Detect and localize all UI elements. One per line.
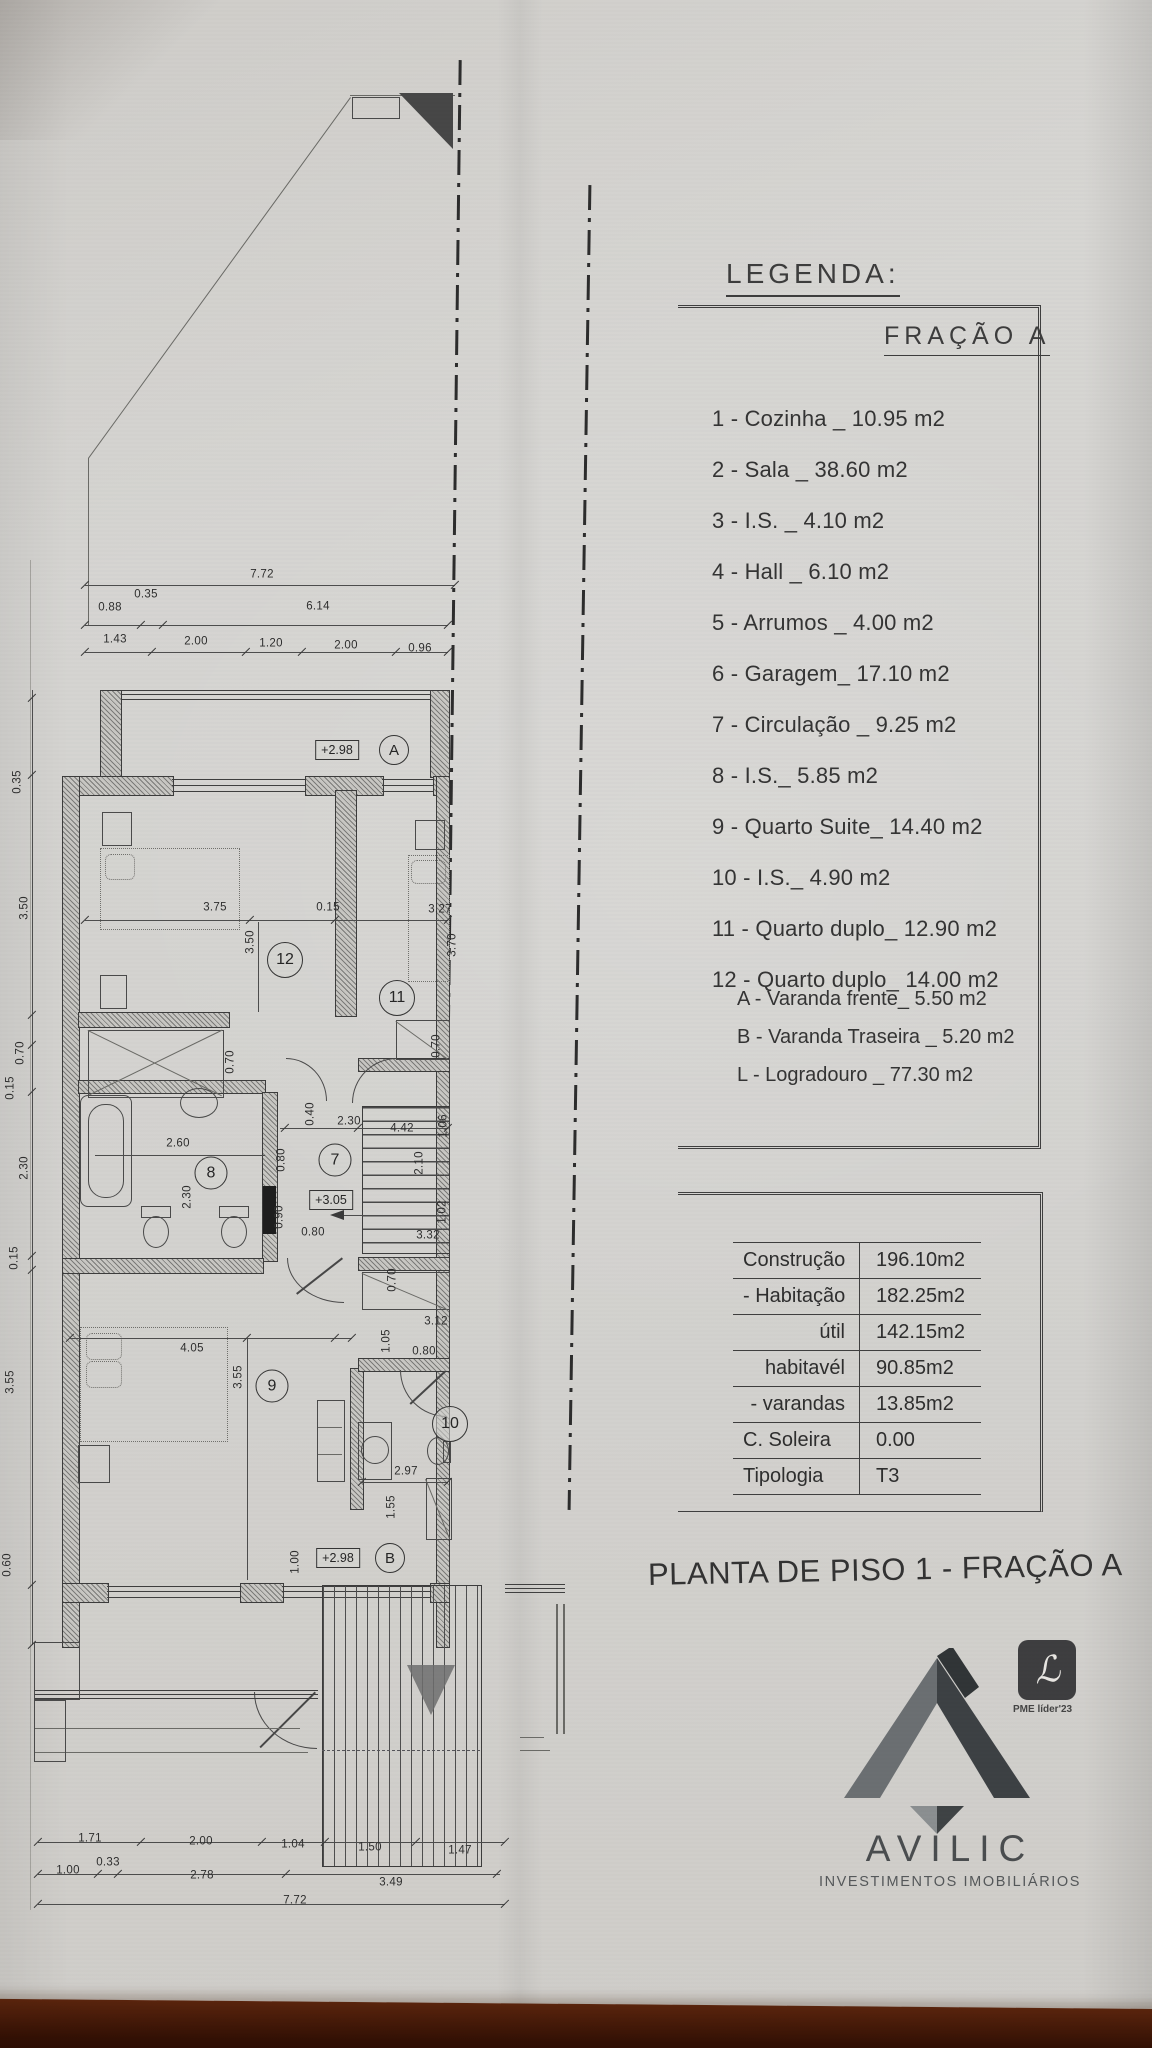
table-row-label: - varandas [733, 1387, 860, 1422]
dimension-label: 3.55 [233, 1365, 245, 1389]
dimension-label: 3.32 [416, 1230, 440, 1242]
dimension-label: 0.70 [387, 1268, 399, 1292]
table-row-value: 90.85m2 [860, 1357, 981, 1380]
dimension-label: 4.05 [180, 1343, 204, 1355]
level-marker: +3.05 [309, 1190, 353, 1210]
wardrobe-icon [317, 1400, 345, 1482]
room-number-11: 11 [379, 980, 415, 1016]
balcony-rail [100, 690, 448, 700]
dimension-label: 3.49 [379, 1877, 403, 1889]
window [382, 779, 433, 792]
dimension-line [362, 1482, 448, 1483]
boundary-marker [352, 97, 400, 119]
dimension-label: 1.55 [386, 1495, 398, 1519]
legend-item: 3 - I.S. _ 4.10 m2 [712, 508, 999, 534]
wall [430, 690, 450, 778]
dimension-line [280, 1128, 448, 1129]
neighbour-line [520, 1750, 550, 1751]
dimension-label: 2.30 [182, 1185, 194, 1209]
legend-subitem: A - Varanda frente_ 5.50 m2 [737, 988, 1015, 1011]
table-row-value: 0.00 [860, 1429, 981, 1452]
legend-subitem-list: A - Varanda frente_ 5.50 m2B - Varanda T… [737, 988, 1015, 1087]
door-arc [286, 1058, 327, 1101]
dimension-label: 2.78 [190, 1870, 214, 1882]
boundary-line [88, 458, 89, 625]
dimension-label: 2.30 [19, 1156, 31, 1180]
sink-icon [180, 1088, 218, 1118]
dimension-label: 7.72 [250, 569, 274, 581]
level-marker: +2.98 [315, 740, 359, 760]
legend-heading: LEGENDA: [726, 258, 900, 297]
dimension-label: 0.70 [225, 1050, 237, 1074]
table-row: TipologiaT3 [733, 1459, 981, 1495]
legend-item: 2 - Sala _ 38.60 m2 [712, 457, 999, 483]
table-row-label: C. Soleira [733, 1423, 860, 1458]
legend-item: 9 - Quarto Suite_ 14.40 m2 [712, 814, 999, 840]
floor-plan-photo: 7.720.880.356.141.432.001.202.000.960.35… [0, 0, 1152, 2048]
avilic-logo: AVILIC INVESTIMENTOS IMOBILIÁRIOS ℒ PME … [820, 1640, 1080, 1905]
wall [240, 1583, 284, 1603]
toilet-icon [143, 1216, 169, 1248]
floor-plan: 7.720.880.356.141.432.001.202.000.960.35… [0, 0, 580, 2048]
dimension-label: 0.80 [301, 1227, 325, 1239]
dimension-label: 0.80 [412, 1346, 436, 1358]
dimension-label: 3.70 [447, 933, 459, 957]
dimension-label: 2.00 [189, 1836, 213, 1848]
legend-subitem: B - Varanda Traseira _ 5.20 m2 [737, 1026, 1015, 1049]
toilet-tank [443, 1441, 451, 1463]
dimension-label: 2.60 [166, 1138, 190, 1150]
legend-item: 8 - I.S._ 5.85 m2 [712, 763, 999, 789]
dimension-label: 1.00 [290, 1550, 302, 1574]
boundary-line [88, 97, 351, 459]
neighbour-line [505, 1584, 565, 1593]
table-row-value: 182.25m2 [860, 1285, 981, 1308]
stairs-arrow-icon [330, 1210, 344, 1220]
fraction-title: FRAÇÃO A [884, 322, 1050, 356]
planter [34, 1642, 80, 1700]
room-number-7: 7 [319, 1144, 352, 1177]
table-surface [0, 1999, 1152, 2048]
dimension-label: 3.27 [428, 904, 452, 916]
dimension-line [38, 1904, 505, 1905]
table-row-value: 196.10m2 [860, 1249, 981, 1272]
table-row: habitavél90.85m2 [733, 1351, 981, 1387]
pillow-icon [105, 854, 135, 880]
dimension-line [258, 922, 259, 1012]
table-row-value: 13.85m2 [860, 1393, 981, 1416]
dimension-label: 2.00 [184, 636, 208, 648]
step-line [35, 1728, 300, 1729]
dimension-label: 3.50 [19, 896, 31, 920]
dimension-label: 0.60 [2, 1553, 14, 1577]
dimension-line [32, 690, 33, 1645]
wall [62, 776, 80, 1648]
table-row-label: habitavél [733, 1351, 860, 1386]
dimension-label: 3.55 [5, 1370, 17, 1394]
logo-triangle-icon [832, 1648, 1042, 1848]
legend-item-list: 1 - Cozinha _ 10.95 m22 - Sala _ 38.60 m… [712, 406, 999, 993]
dimension-label: 0.80 [276, 1148, 288, 1172]
legend-subitem: L - Logradouro _ 77.30 m2 [737, 1064, 1015, 1087]
direction-triangle-icon [407, 1665, 455, 1715]
table-row: útil142.15m2 [733, 1315, 981, 1351]
areas-table: Construção196.10m2- Habitação182.25m2úti… [733, 1242, 981, 1495]
dimension-label: 3.75 [203, 902, 227, 914]
table-row-label: Tipologia [733, 1459, 860, 1494]
dimension-line [247, 1338, 248, 1580]
dimension-label: 1.02 [437, 1200, 449, 1224]
stairs-direction-line [340, 1215, 440, 1216]
dimension-line [85, 585, 455, 586]
dimension-label: 0.40 [305, 1102, 317, 1126]
room-number-A: A [379, 735, 409, 765]
wall [358, 1257, 450, 1271]
bathtub-inner [88, 1104, 124, 1198]
dimension-label: 0.35 [134, 589, 158, 601]
dimension-label: 2.10 [414, 1151, 426, 1175]
table-row: - varandas13.85m2 [733, 1387, 981, 1423]
planter [34, 1700, 66, 1762]
wardrobe-shelf [318, 1454, 342, 1455]
dimension-label: 1.43 [103, 634, 127, 646]
dimension-label: 0.90 [274, 1205, 286, 1229]
dimension-label: 1.71 [78, 1833, 102, 1845]
badge-script-l-icon: ℒ [1031, 1647, 1063, 1692]
wall [78, 1012, 230, 1028]
nightstand-icon [78, 1445, 110, 1483]
dimension-label: 2.97 [394, 1466, 418, 1478]
pillow-icon [86, 1361, 122, 1388]
dimension-label: 1.05 [381, 1329, 393, 1353]
legend-item: 4 - Hall _ 6.10 m2 [712, 559, 999, 585]
room-number-12: 12 [267, 942, 303, 978]
legend-item: 6 - Garagem_ 17.10 m2 [712, 661, 999, 687]
nightstand-icon [102, 812, 132, 846]
room-number-8: 8 [195, 1157, 228, 1190]
logo-name: AVILIC [866, 1828, 1034, 1870]
window [107, 1586, 240, 1598]
dimension-label: 0.35 [12, 770, 24, 794]
wall [62, 1258, 264, 1274]
dimension-line [70, 1338, 352, 1339]
sheet-title: PLANTA DE PISO 1 - FRAÇÃO A [648, 1547, 1123, 1593]
neighbour-line [563, 1604, 565, 1734]
wall [262, 1092, 278, 1262]
sink-icon [361, 1436, 389, 1464]
logo-subtitle: INVESTIMENTOS IMOBILIÁRIOS [819, 1874, 1081, 1890]
ramp-dashed-line [322, 1750, 480, 1751]
table-row: C. Soleira0.00 [733, 1423, 981, 1459]
table-row: - Habitação182.25m2 [733, 1279, 981, 1315]
bidet-icon [221, 1216, 247, 1248]
dimension-label: 6.14 [306, 601, 330, 613]
legend-item: 5 - Arrumos _ 4.00 m2 [712, 610, 999, 636]
table-row: Construção196.10m2 [733, 1242, 981, 1279]
shower-icon [426, 1478, 452, 1540]
dimension-label: 0.33 [96, 1857, 120, 1869]
table-row-value: T3 [860, 1465, 981, 1488]
neighbour-line [520, 1737, 544, 1738]
table-row-label: útil [733, 1315, 860, 1350]
room-number-10: 10 [432, 1406, 468, 1442]
neighbour-line [556, 1604, 558, 1734]
step-line [35, 1752, 308, 1753]
dimension-label: 3.50 [245, 930, 257, 954]
dimension-label: 7.72 [283, 1895, 307, 1907]
dimension-line [95, 1155, 265, 1156]
dimension-line [85, 920, 448, 921]
dash-dot-line [568, 185, 592, 1510]
legend-item: 7 - Circulação _ 9.25 m2 [712, 712, 999, 738]
dimension-line [38, 1874, 500, 1875]
dimension-label: 1.00 [56, 1865, 80, 1877]
dimension-label: 1.04 [281, 1839, 305, 1851]
table-row-value: 142.15m2 [860, 1321, 981, 1344]
dimension-label: 0.70 [431, 1034, 443, 1058]
dimension-line [38, 1842, 505, 1843]
plot-edge-line [30, 560, 31, 1910]
badge-caption: PME líder'23 [1013, 1704, 1072, 1715]
legend-item: 11 - Quarto duplo_ 12.90 m2 [712, 916, 999, 942]
dimension-label: 1.50 [358, 1842, 382, 1854]
room-number-B: B [375, 1543, 405, 1573]
dimension-label: 0.15 [316, 902, 340, 914]
dimension-label: 2.00 [334, 640, 358, 652]
wardrobe-shelf [318, 1427, 342, 1428]
dimension-label: 0.96 [408, 643, 432, 655]
pme-lider-badge: ℒ [1018, 1640, 1076, 1700]
dimension-label: 0.70 [15, 1041, 27, 1065]
dimension-label: 3.12 [424, 1316, 448, 1328]
level-marker: +2.98 [316, 1548, 360, 1568]
north-pennant-icon [399, 93, 453, 149]
wall [100, 690, 122, 778]
exterior-stair-ramp [322, 1585, 482, 1867]
dimension-label: 4.42 [390, 1123, 414, 1135]
nightstand-icon [100, 975, 127, 1009]
dimension-label: 0.88 [98, 602, 122, 614]
vanity-icon [415, 820, 445, 850]
pillow-icon [411, 860, 446, 884]
legend-item: 10 - I.S._ 4.90 m2 [712, 865, 999, 891]
room-number-9: 9 [256, 1370, 289, 1403]
wall [62, 1583, 109, 1603]
legend-item: 1 - Cozinha _ 10.95 m2 [712, 406, 999, 432]
window [172, 779, 305, 792]
dimension-label: 0.15 [5, 1076, 17, 1100]
table-row-label: - Habitação [733, 1279, 860, 1314]
dimension-label: 0.15 [9, 1246, 21, 1270]
dimension-label: 1.20 [259, 638, 283, 650]
table-row-label: Construção [733, 1243, 860, 1278]
dimension-label: 1.47 [448, 1845, 472, 1857]
